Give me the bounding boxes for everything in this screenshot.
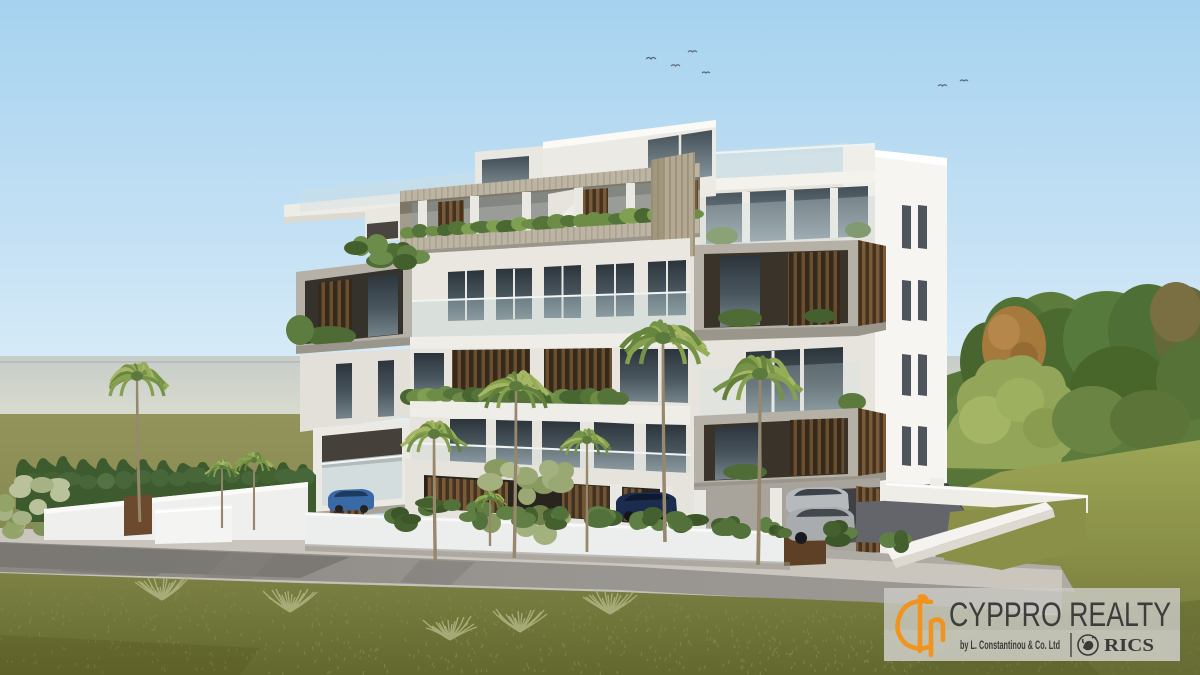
svg-text:by L. Constantinou & Co. Ltd: by L. Constantinou & Co. Ltd bbox=[960, 638, 1060, 652]
svg-text:CYPPRO REALTY: CYPPRO REALTY bbox=[949, 596, 1171, 634]
svg-text:RICS: RICS bbox=[1104, 635, 1154, 655]
